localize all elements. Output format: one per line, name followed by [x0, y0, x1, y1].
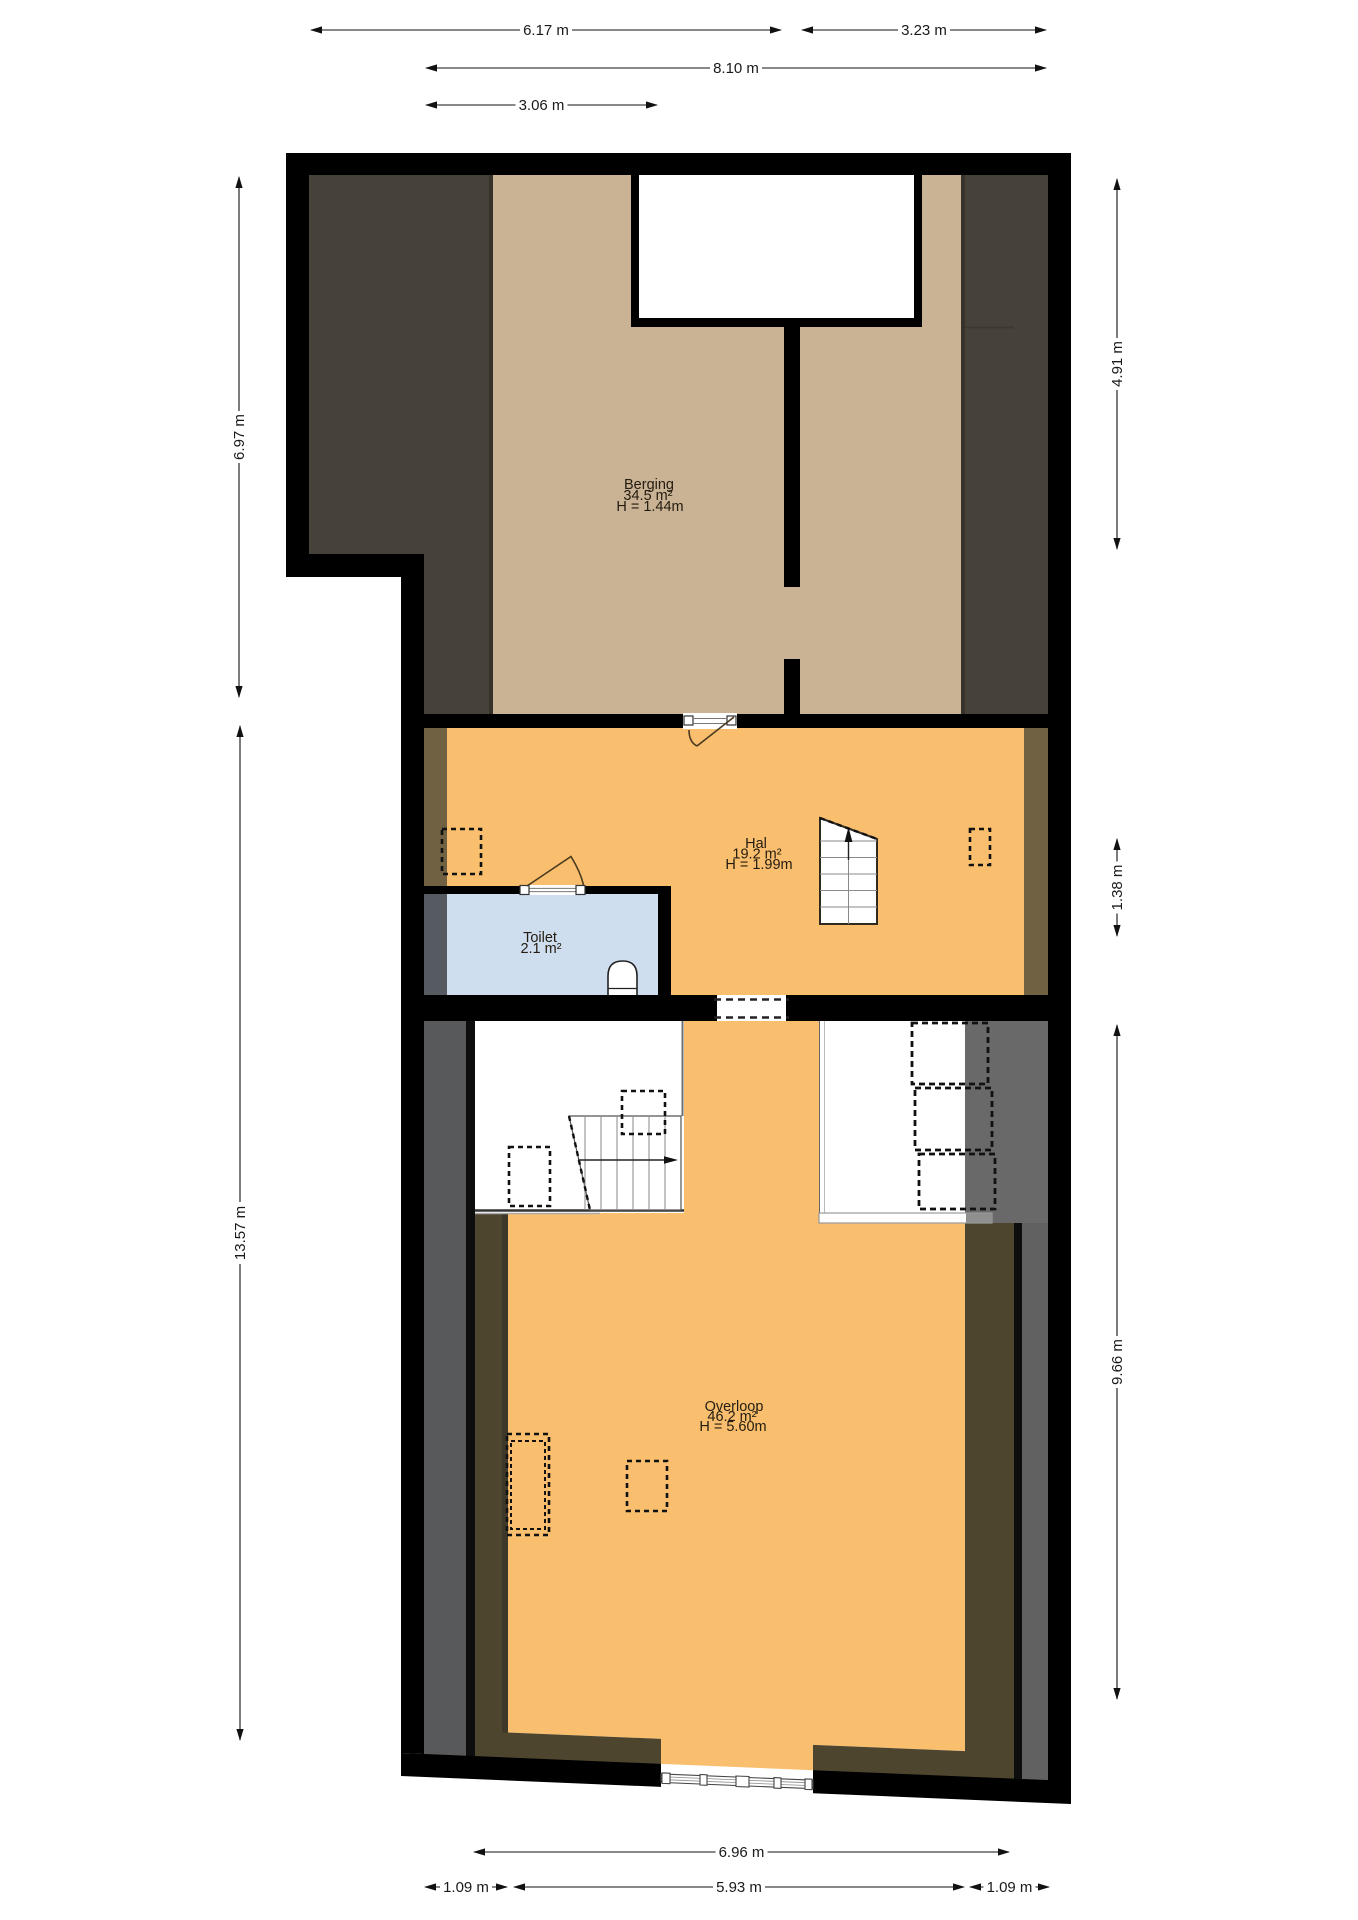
svg-text:2.1 m²: 2.1 m²: [520, 941, 561, 957]
svg-text:1.09 m: 1.09 m: [987, 1879, 1033, 1896]
svg-text:H = 5.60m: H = 5.60m: [699, 1419, 766, 1435]
svg-text:6.96 m: 6.96 m: [719, 1844, 765, 1861]
svg-text:13.57 m: 13.57 m: [232, 1206, 249, 1260]
svg-text:8.10 m: 8.10 m: [713, 60, 759, 77]
svg-text:6.17 m: 6.17 m: [523, 22, 569, 39]
svg-text:6.97 m: 6.97 m: [231, 414, 248, 460]
svg-text:9.66 m: 9.66 m: [1109, 1339, 1126, 1385]
svg-text:1.09 m: 1.09 m: [443, 1879, 489, 1896]
svg-text:H = 1.44m: H = 1.44m: [616, 499, 683, 515]
svg-text:3.23 m: 3.23 m: [901, 22, 947, 39]
svg-text:4.91 m: 4.91 m: [1109, 341, 1126, 387]
svg-text:H = 1.99m: H = 1.99m: [725, 857, 792, 873]
svg-text:3.06 m: 3.06 m: [519, 97, 565, 114]
svg-text:5.93 m: 5.93 m: [716, 1879, 762, 1896]
svg-text:1.38 m: 1.38 m: [1109, 865, 1126, 911]
